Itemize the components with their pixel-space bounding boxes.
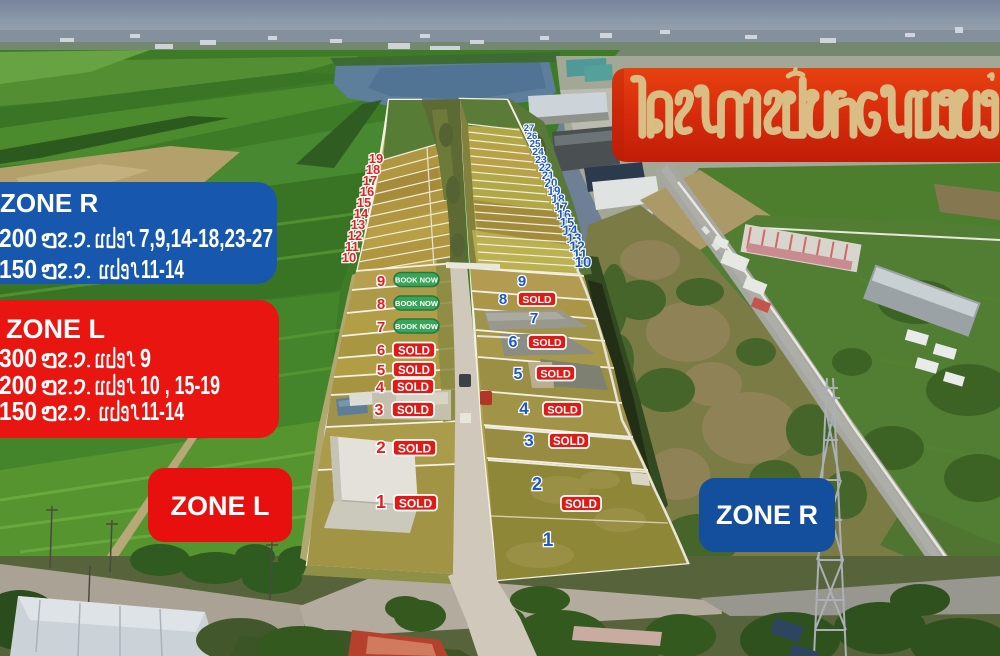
svg-text:8: 8	[377, 296, 385, 313]
svg-text:BOOK NOW: BOOK NOW	[395, 299, 439, 308]
svg-text:9: 9	[140, 343, 151, 373]
svg-text:5: 5	[377, 362, 385, 379]
svg-text:4: 4	[519, 399, 529, 418]
svg-text:SOLD: SOLD	[397, 382, 429, 394]
svg-text:SOLD: SOLD	[398, 442, 432, 456]
svg-text:10: 10	[342, 250, 356, 265]
svg-text:SOLD: SOLD	[398, 346, 430, 358]
svg-text:ZONE R: ZONE R	[716, 500, 818, 530]
svg-text:6: 6	[509, 334, 518, 351]
svg-text:SOLD: SOLD	[397, 405, 429, 417]
svg-text:2: 2	[532, 474, 542, 494]
svg-text:150: 150	[0, 254, 37, 284]
svg-text:4: 4	[376, 379, 385, 396]
svg-text:ZONE L: ZONE L	[171, 491, 270, 521]
svg-text:8: 8	[499, 291, 507, 308]
svg-text:9: 9	[377, 273, 385, 290]
svg-text:BOOK NOW: BOOK NOW	[395, 276, 439, 285]
svg-text:1: 1	[376, 492, 386, 512]
svg-text:SOLD: SOLD	[398, 365, 430, 377]
svg-text:3: 3	[375, 402, 384, 419]
svg-text:SOLD: SOLD	[553, 436, 585, 448]
svg-text:7,9,14-18,23-27: 7,9,14-18,23-27	[139, 223, 273, 253]
svg-text:150: 150	[0, 396, 37, 426]
svg-text:ZONE L: ZONE L	[6, 314, 105, 344]
svg-text:SOLD: SOLD	[547, 405, 578, 417]
svg-text:ZONE R: ZONE R	[0, 188, 98, 218]
svg-text:SOLD: SOLD	[522, 294, 552, 306]
svg-text:2: 2	[376, 438, 385, 457]
svg-text:300: 300	[0, 343, 37, 373]
svg-text:5: 5	[514, 366, 523, 383]
svg-text:SOLD: SOLD	[565, 499, 597, 511]
svg-text:9: 9	[518, 273, 526, 290]
svg-text:7: 7	[377, 319, 385, 336]
svg-text:6: 6	[377, 342, 385, 359]
svg-text:SOLD: SOLD	[532, 337, 562, 349]
svg-text:7: 7	[530, 310, 538, 327]
svg-text:200: 200	[0, 223, 37, 253]
svg-text:11-14: 11-14	[141, 396, 184, 426]
svg-text:BOOK NOW: BOOK NOW	[395, 322, 439, 331]
svg-text:1: 1	[543, 530, 554, 551]
svg-text:SOLD: SOLD	[540, 369, 571, 381]
svg-text:11-14: 11-14	[141, 254, 184, 284]
svg-text:3: 3	[524, 431, 533, 450]
svg-text:SOLD: SOLD	[399, 497, 433, 511]
svg-text:10: 10	[575, 254, 592, 271]
